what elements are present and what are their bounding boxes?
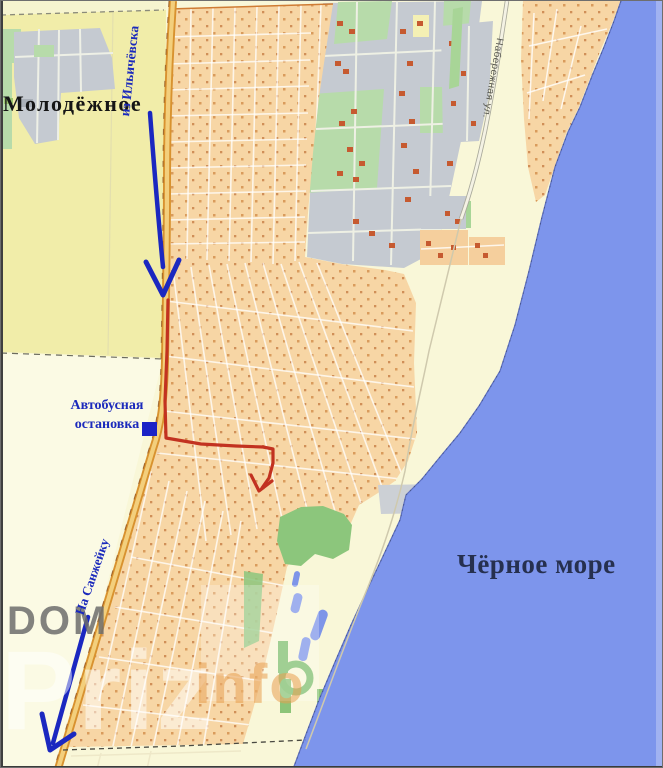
bus-stop-marker [142,422,157,436]
left-border [1,1,3,768]
right-edge-strip [656,1,663,768]
map-image: DOM Priz info Молодёжное Чёрное море Авт… [0,0,663,768]
map-canvas [1,1,663,768]
